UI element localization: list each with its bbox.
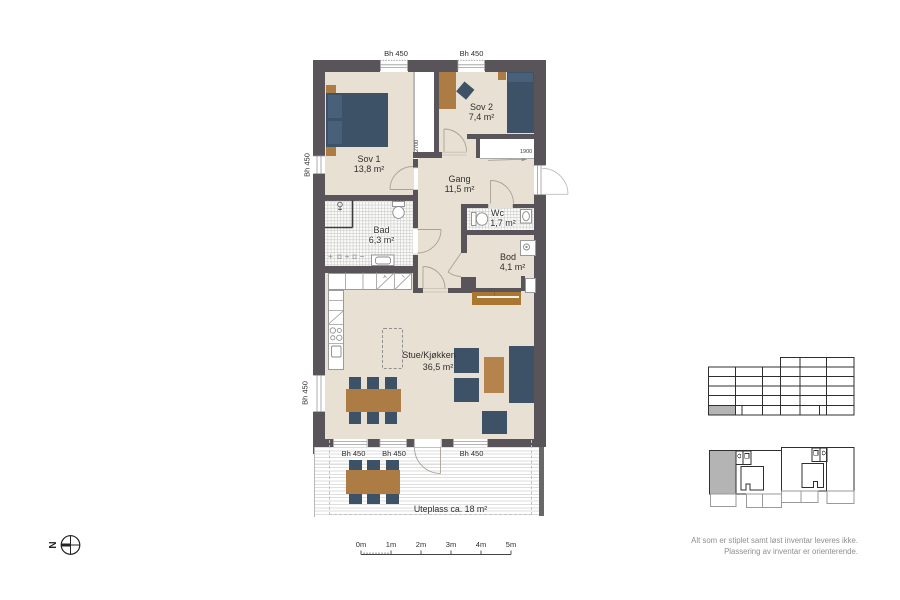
- svg-text:N: N: [48, 541, 59, 548]
